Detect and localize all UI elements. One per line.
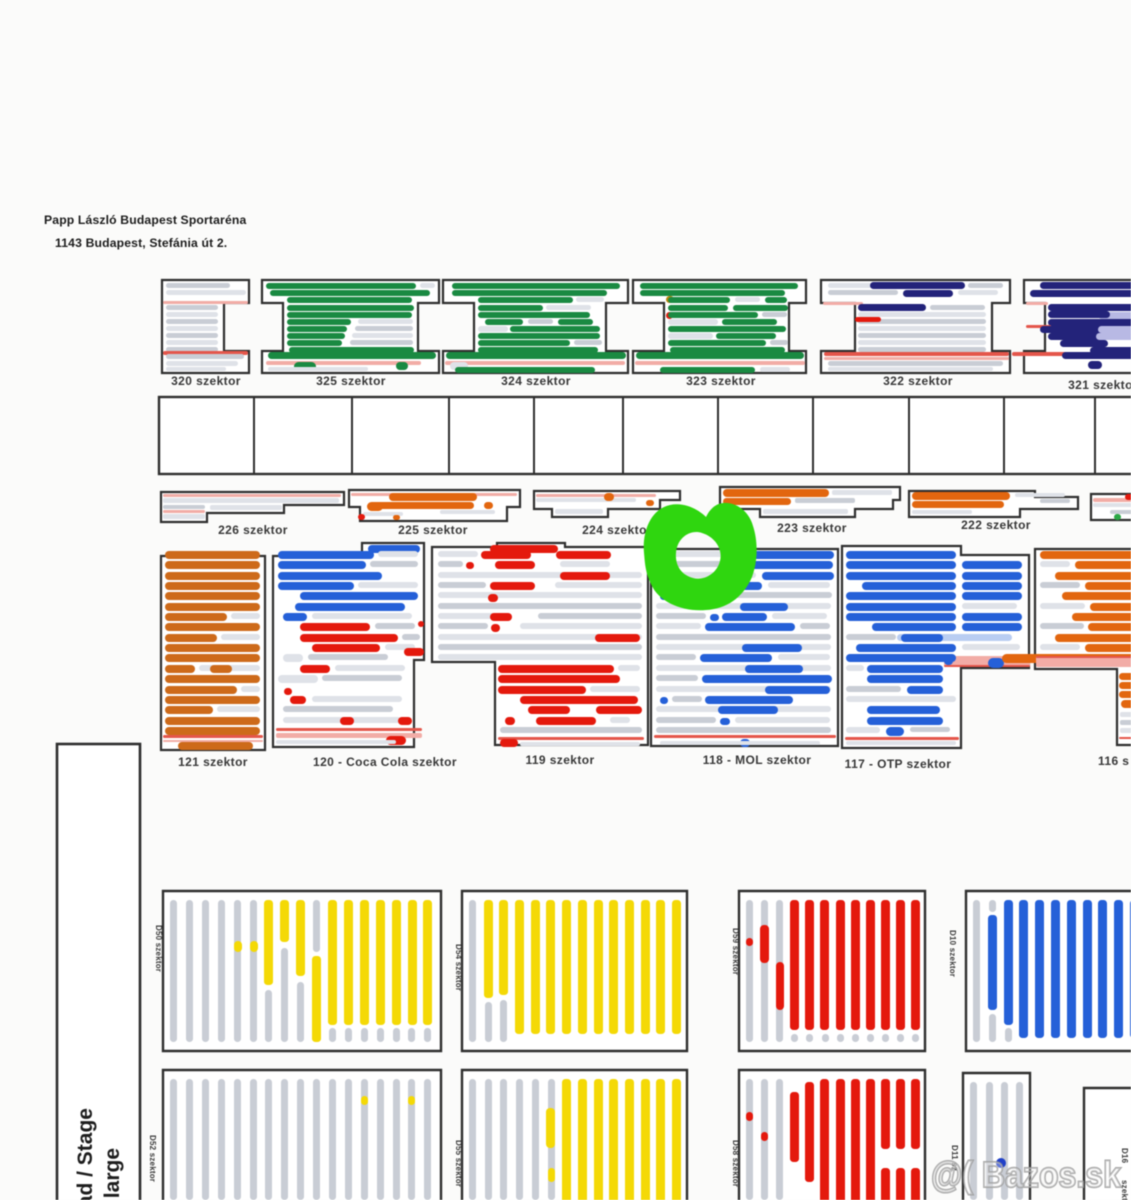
svg-text:320 szektor: 320 szektor bbox=[171, 374, 241, 388]
svg-text:Papp László Budapest Sportarén: Papp László Budapest Sportaréna bbox=[44, 213, 246, 227]
svg-text:223 szektor: 223 szektor bbox=[777, 521, 847, 535]
svg-text:extra large: extra large bbox=[101, 1148, 124, 1200]
svg-text:117 - OTP szektor: 117 - OTP szektor bbox=[845, 757, 952, 771]
svg-text:D50 szektor: D50 szektor bbox=[154, 925, 163, 972]
svg-text:D52 szektor: D52 szektor bbox=[148, 1135, 157, 1182]
svg-text:225 szektor: 225 szektor bbox=[398, 523, 468, 537]
svg-text:224 szektor: 224 szektor bbox=[582, 523, 652, 537]
svg-text:324 szektor: 324 szektor bbox=[501, 374, 571, 388]
svg-text:Színpad / Stage: Színpad / Stage bbox=[74, 1108, 97, 1200]
svg-text:322 szektor: 322 szektor bbox=[883, 374, 953, 388]
svg-text:szekt: szekt bbox=[1120, 1180, 1129, 1200]
svg-text:118 - MOL szektor: 118 - MOL szektor bbox=[703, 753, 812, 767]
svg-text:222 szektor: 222 szektor bbox=[961, 518, 1031, 532]
svg-text:D16: D16 bbox=[1120, 1148, 1129, 1164]
svg-text:325 szektor: 325 szektor bbox=[316, 374, 386, 388]
svg-text:D10 szektor: D10 szektor bbox=[948, 930, 957, 977]
svg-text:226 szektor: 226 szektor bbox=[218, 523, 288, 537]
svg-text:323 szektor: 323 szektor bbox=[686, 374, 756, 388]
svg-text:@( Bazos.sk: @( Bazos.sk bbox=[931, 1154, 1122, 1195]
svg-text:121 szektor: 121 szektor bbox=[178, 755, 248, 769]
svg-text:116 s: 116 s bbox=[1098, 754, 1129, 768]
svg-text:1143 Budapest, Stefánia út 2.: 1143 Budapest, Stefánia út 2. bbox=[55, 236, 227, 250]
svg-text:120 - Coca Cola szektor: 120 - Coca Cola szektor bbox=[313, 755, 457, 769]
svg-text:321 szektor: 321 szektor bbox=[1068, 378, 1131, 392]
svg-text:119 szektor: 119 szektor bbox=[525, 753, 594, 767]
